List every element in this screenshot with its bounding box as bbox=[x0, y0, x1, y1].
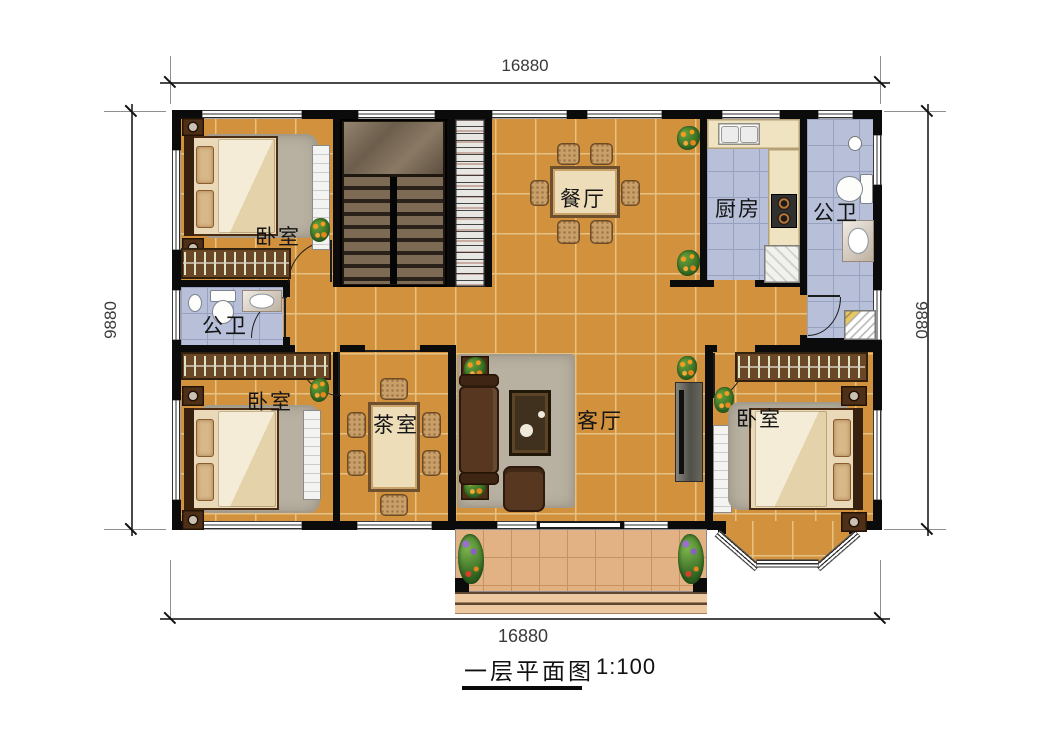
extension-line bbox=[884, 529, 946, 530]
bed-blanket bbox=[218, 411, 276, 507]
room-label-bedroom-tl: 卧室 bbox=[255, 221, 301, 251]
wall bbox=[283, 337, 290, 345]
wall bbox=[420, 345, 456, 352]
porch-floor bbox=[455, 529, 707, 592]
sink-basin bbox=[721, 126, 739, 143]
room-label-kitchen: 厨房 bbox=[715, 193, 761, 223]
plant bbox=[310, 218, 330, 242]
dimension-label-bottom: 16880 bbox=[473, 626, 573, 647]
nightstand bbox=[182, 510, 204, 530]
bed-blanket bbox=[218, 139, 275, 233]
window bbox=[873, 410, 882, 500]
bed-pillow bbox=[196, 190, 214, 228]
stair-divider bbox=[390, 177, 397, 284]
tea-chair bbox=[422, 412, 441, 438]
room-label-tea-room: 茶室 bbox=[373, 409, 419, 439]
room-label-bedroom-bl: 卧室 bbox=[247, 386, 293, 416]
nightstand bbox=[841, 386, 867, 406]
coffee-table bbox=[509, 390, 551, 456]
window bbox=[202, 110, 302, 119]
floor-plan-canvas: 16880 16880 9880 9880 bbox=[0, 0, 1060, 749]
dining-chair bbox=[530, 180, 549, 206]
tv-stand bbox=[675, 382, 703, 482]
wall bbox=[670, 280, 700, 287]
nightstand bbox=[182, 386, 204, 406]
bay-window-glass bbox=[757, 560, 818, 567]
window bbox=[358, 110, 435, 119]
porch-step bbox=[455, 592, 707, 603]
wardrobe bbox=[181, 352, 331, 380]
room-label-living: 客厅 bbox=[577, 405, 623, 435]
wall bbox=[700, 110, 707, 287]
dimension-line-top bbox=[160, 82, 890, 84]
window bbox=[172, 150, 181, 250]
window bbox=[172, 290, 181, 340]
dining-chair bbox=[590, 143, 613, 165]
tea-chair bbox=[347, 412, 366, 438]
wall bbox=[447, 110, 455, 287]
window bbox=[357, 521, 432, 530]
plant bbox=[310, 378, 329, 402]
bed-headboard bbox=[853, 408, 863, 510]
wall bbox=[333, 110, 340, 287]
wall bbox=[448, 352, 456, 521]
plant bbox=[677, 250, 700, 276]
stair-flight-right bbox=[397, 177, 443, 284]
dining-chair bbox=[557, 143, 580, 165]
wall bbox=[340, 345, 365, 352]
wall bbox=[705, 352, 713, 521]
dimension-label-left: 9880 bbox=[101, 295, 121, 345]
bed-pillow bbox=[833, 419, 851, 457]
sofa bbox=[459, 386, 499, 474]
entry-porch bbox=[455, 529, 707, 614]
window bbox=[202, 521, 302, 530]
wall bbox=[172, 280, 290, 287]
wall bbox=[172, 345, 295, 352]
room-label-bedroom-br: 卧室 bbox=[736, 403, 782, 433]
window bbox=[587, 110, 662, 119]
window-bench bbox=[303, 410, 321, 500]
wall bbox=[705, 345, 717, 352]
wall bbox=[800, 110, 807, 295]
bay-window bbox=[718, 521, 857, 569]
dimension-line-bottom bbox=[160, 618, 890, 620]
stair-flight-left bbox=[344, 177, 390, 284]
dimension-label-right: 9880 bbox=[911, 295, 931, 345]
window bbox=[818, 110, 853, 119]
bed-pillow bbox=[833, 463, 851, 501]
refrigerator bbox=[764, 245, 800, 283]
dimension-label-top: 16880 bbox=[475, 56, 575, 76]
shower-tray bbox=[844, 310, 876, 340]
room-label-bathroom-right: 公卫 bbox=[813, 197, 859, 227]
wall bbox=[755, 345, 882, 352]
plant bbox=[677, 356, 697, 380]
plan-title: 一层平面图 bbox=[464, 652, 594, 686]
plant bbox=[677, 126, 700, 150]
storage-shelf bbox=[455, 119, 485, 287]
room-label-dining: 餐厅 bbox=[560, 183, 606, 213]
wall bbox=[283, 287, 290, 297]
tea-chair bbox=[422, 450, 441, 476]
urinal bbox=[188, 294, 202, 312]
sink-basin bbox=[740, 126, 758, 143]
porch-step bbox=[455, 603, 707, 614]
wall-lamp bbox=[848, 136, 862, 151]
extension-line bbox=[880, 560, 881, 618]
extension-line bbox=[884, 111, 946, 112]
bed-pillow bbox=[196, 419, 214, 457]
plan-scale: 1:100 bbox=[596, 654, 656, 680]
wardrobe bbox=[735, 352, 868, 382]
bed-pillow bbox=[196, 463, 214, 501]
door-opening-sill bbox=[365, 350, 420, 352]
nightstand bbox=[182, 118, 204, 136]
dining-chair bbox=[590, 220, 613, 244]
room-label-bathroom-left: 公卫 bbox=[202, 310, 248, 340]
kitchen-sink bbox=[718, 123, 760, 145]
dining-chair bbox=[621, 180, 640, 206]
window bbox=[172, 400, 181, 500]
stove bbox=[771, 194, 797, 228]
bathroom-sink bbox=[242, 290, 282, 312]
window bbox=[873, 135, 882, 185]
bed bbox=[184, 408, 279, 510]
dimension-line-left bbox=[131, 104, 133, 536]
entry-door-sill bbox=[540, 521, 620, 523]
wall bbox=[485, 110, 492, 287]
staircase bbox=[340, 119, 447, 287]
window bbox=[722, 110, 780, 119]
floor-plan: 卧室 餐厅 厨房 公卫 公卫 卧室 茶室 客厅 卧室 bbox=[172, 110, 882, 530]
bed-pillow bbox=[196, 146, 214, 184]
stair-landing bbox=[344, 122, 443, 174]
plan-title-underline bbox=[462, 686, 582, 690]
extension-line bbox=[104, 529, 166, 530]
extension-line bbox=[170, 560, 171, 618]
bed-headboard bbox=[184, 136, 194, 236]
tea-chair bbox=[380, 378, 408, 400]
porch-plant bbox=[458, 534, 484, 584]
window bbox=[492, 110, 567, 119]
wall bbox=[700, 280, 714, 287]
bed-headboard bbox=[184, 408, 194, 510]
sofa-armrest bbox=[459, 472, 499, 485]
tea-chair bbox=[347, 450, 366, 476]
nightstand bbox=[841, 512, 867, 532]
dining-chair bbox=[557, 220, 580, 244]
armchair bbox=[503, 466, 545, 512]
extension-line bbox=[104, 111, 166, 112]
tv-icon bbox=[679, 390, 684, 474]
porch-plant bbox=[678, 534, 704, 584]
tea-chair bbox=[380, 494, 408, 516]
wardrobe bbox=[181, 248, 291, 279]
